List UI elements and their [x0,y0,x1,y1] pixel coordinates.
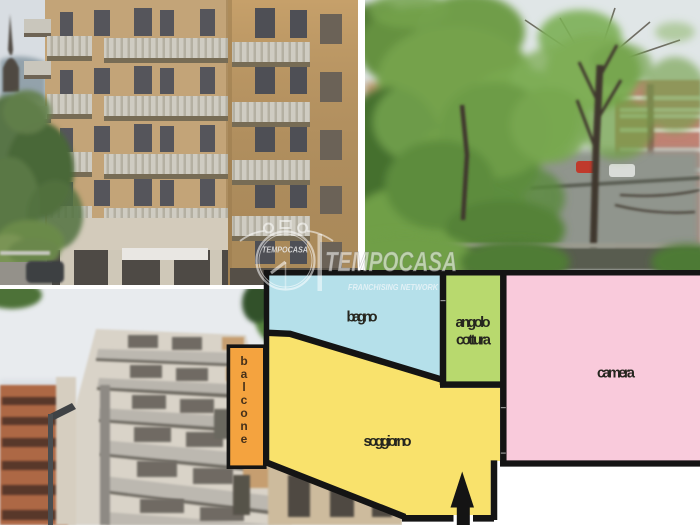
svg-text:TEMPOCASA: TEMPOCASA [325,246,457,277]
svg-text:FRANCHISING NETWORK: FRANCHISING NETWORK [348,283,439,292]
svg-text:TEMPOCASA: TEMPOCASA [262,245,308,255]
